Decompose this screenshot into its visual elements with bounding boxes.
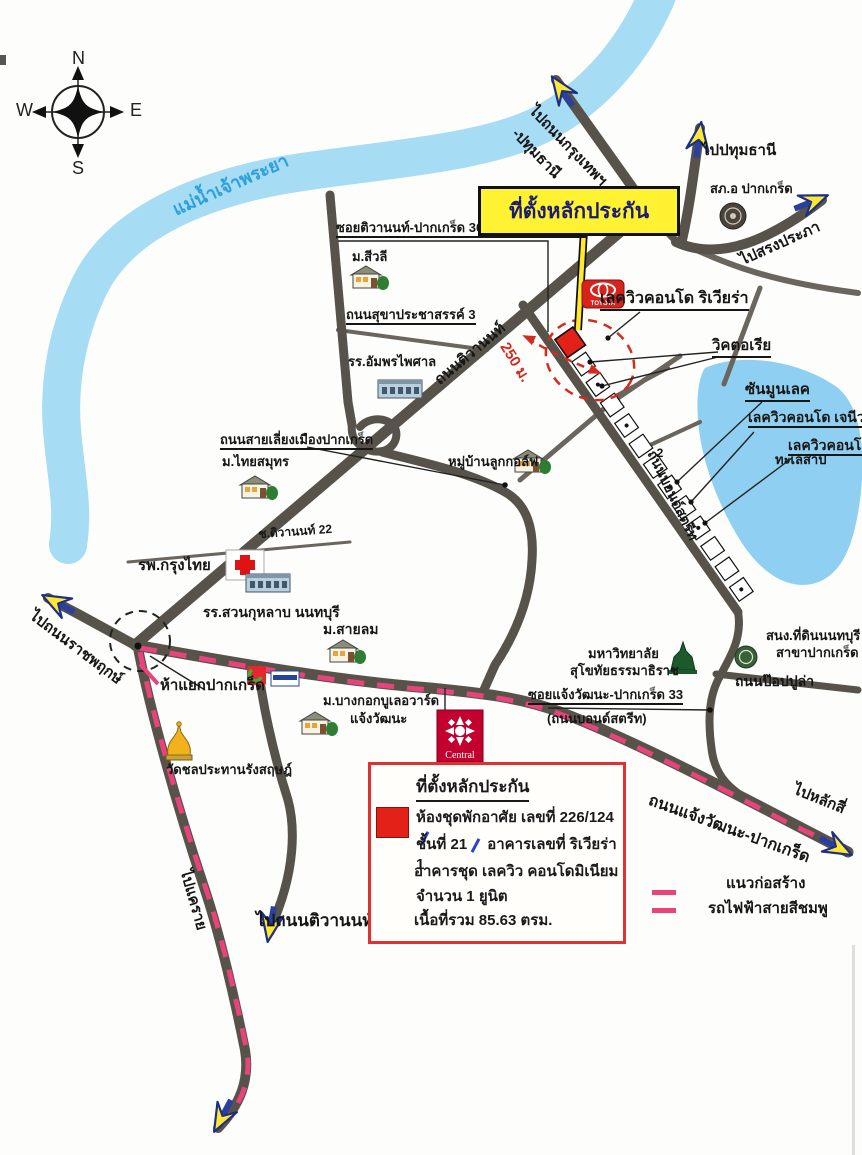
svg-text:Central: Central [445, 750, 475, 761]
bypass-road-label: ถนนสายเลี่ยงเมืองปากเกร็ด [220, 433, 373, 450]
map-canvas: 2 [0, 0, 862, 1155]
land-office-label-2: สาขาปากเกร็ด [776, 646, 859, 660]
sailom-label: ม.สายลม [323, 622, 379, 637]
compass-w: W [16, 100, 33, 121]
info-line-3: อาคารชุด เลควิว คอนโดมิเนียม [414, 859, 618, 883]
bangkok-boulevard-label-1: ม.บางกอกบูเลอวาร์ด [323, 694, 439, 708]
info-title: ที่ตั้งหลักประกัน [416, 773, 529, 802]
thai-samut-label: ม.ไทยสมุทร [222, 455, 289, 469]
title-pointer [578, 230, 584, 330]
compass-rose-icon [32, 66, 124, 158]
wat-chonprathan-label: วัดชลประทานรังสฤษฎ์ [166, 763, 292, 777]
homepro-icon [271, 671, 299, 686]
lakeview-riviera-label: เลควิวคอนโด ริเวียร่า [600, 290, 749, 311]
central-icon: Central [437, 710, 483, 762]
lakeview-geneva-label: เลควิวคอนโด เจนีวา [748, 410, 862, 428]
collateral-title-box: ที่ตั้งหลักประกัน [478, 186, 680, 236]
krungthai-hospital-label: รพ.กรุงไทย [138, 558, 211, 575]
stou-label-2: สุโขทัยธรรมาธิราช [570, 664, 679, 678]
legend-line-1: แนวก่อสร้าง [726, 871, 805, 895]
scan-mark [0, 55, 6, 65]
lake-label: ทะเลสาป [775, 453, 826, 467]
info-line-4: จำนวน 1 ยูนิต [416, 884, 508, 908]
map-drawing: 2 [0, 0, 862, 1155]
junction-dot [135, 643, 142, 650]
sukhaprachasan-3-label: ถนนสุขาประชาสรรค์ 3 [346, 308, 476, 325]
info-line-5: เนื้อที่รวม 85.63 ตรม. [414, 908, 552, 932]
compass-s: S [72, 158, 84, 179]
pink-line-legend-swatch [652, 882, 691, 918]
sivalee-label: ม.สีวลี [352, 250, 387, 264]
to-tiwanon-label: ไปถนนติวานนท์ [256, 912, 373, 931]
compass-n: N [72, 48, 85, 69]
police-seal-icon [720, 203, 746, 229]
temple-chedi-icon [166, 722, 192, 760]
soi-chaengwattana-33-sub-label: (ถนนบอนด์สตรีท) [547, 712, 647, 726]
suankularb-label: รร.สวนกุหลาบ นนทบุรี [203, 605, 340, 620]
popular-road-label: ถนนป๊อปปูล่า [735, 674, 814, 689]
check-slash-icon [471, 838, 481, 853]
stou-label-1: มหาวิทยาลัย [588, 647, 659, 661]
pakkret-junction-label: ห้าแยกปากเกร็ด [160, 678, 265, 695]
land-office-seal-icon [735, 646, 757, 668]
golf-village-label: หมู่บ้านลูกกอล์ฟ [448, 455, 538, 469]
to-pathumthani-label: ไปปทุมธานี [702, 143, 776, 160]
land-office-label-1: สนง.ที่ดินนนทบุรี [766, 629, 860, 643]
soi-chaengwattana-33-label: ซอยแจ้งวัฒนะ-ปากเกร็ด 33 [528, 688, 683, 705]
legend-line-2: รถไฟฟ้าสายสีชมพู [708, 896, 828, 920]
scan-crease [852, 945, 855, 1155]
red-marker-swatch [376, 807, 409, 838]
compass-e: E [130, 100, 142, 121]
bangkok-boulevard-label-2: แจ้งวัฒนะ [350, 712, 407, 726]
police-station-label: สภ.อ ปากเกร็ด [710, 182, 793, 196]
victoria-label: วิคตอเรีย [712, 338, 771, 358]
collateral-info-box: ที่ตั้งหลักประกัน ห้องชุดพักอาศัย เลขที่… [368, 762, 626, 944]
amphon-school-label: รร.อัมพรไพศาล [348, 355, 436, 369]
sun-moon-lake-label: ซันมูนเลค [745, 382, 810, 402]
